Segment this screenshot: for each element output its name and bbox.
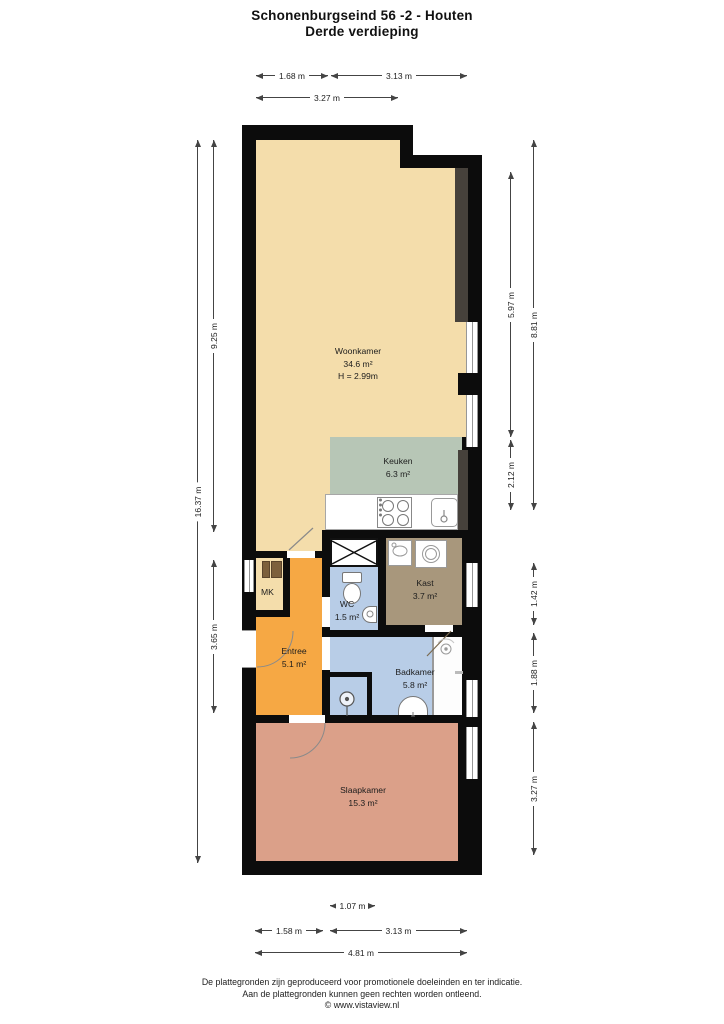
dim-left-1: 16.37 m xyxy=(197,140,198,863)
room-area: 1.5 m² xyxy=(335,611,359,624)
wall-shower-top xyxy=(330,672,372,677)
dim-label: 2.12 m xyxy=(506,458,516,492)
copyright: © www.vistaview.nl xyxy=(0,1000,724,1012)
room-height: H = 2.99m xyxy=(335,370,381,383)
floor-woonkamer-lower xyxy=(256,437,330,551)
toilet-tank xyxy=(342,572,362,583)
room-name: Kast xyxy=(413,577,437,590)
disclaimer: De plattegronden zijn geproduceerd voor … xyxy=(0,977,724,1012)
dim-label: 3.65 m xyxy=(209,620,219,654)
shower-area xyxy=(432,637,462,717)
disclaimer-line-1: De plattegronden zijn geproduceerd voor … xyxy=(0,977,724,989)
wall-window-pier xyxy=(458,373,482,395)
dim-bottom-2: 1.58 m xyxy=(255,930,323,931)
room-name: Badkamer xyxy=(395,666,434,679)
dim-label: 1.07 m xyxy=(336,901,370,911)
title-address: Schonenburgseind 56 -2 - Houten xyxy=(0,8,724,24)
dim-label: 3.27 m xyxy=(529,772,539,806)
kast-sink-unit xyxy=(388,540,412,566)
window-badkamer xyxy=(466,680,478,717)
dim-left-3: 3.65 m xyxy=(213,560,214,713)
dim-bottom-1: 1.07 m xyxy=(330,905,375,906)
wall-wc-badkamer xyxy=(322,630,385,637)
dim-label: 8.81 m xyxy=(529,308,539,342)
room-label-badkamer: Badkamer 5.8 m² xyxy=(395,666,434,691)
dim-label: 5.97 m xyxy=(506,288,516,322)
stove xyxy=(377,497,412,528)
window-recess-keuken xyxy=(458,450,468,530)
door-opening-wc xyxy=(322,597,330,627)
shower-door-handle xyxy=(455,671,463,674)
disclaimer-line-2: Aan de plattegronden kunnen geen rechten… xyxy=(0,989,724,1001)
room-name: Woonkamer xyxy=(335,345,381,358)
dim-label: 1.58 m xyxy=(272,926,306,936)
dim-right-4: 1.42 m xyxy=(533,563,534,625)
room-label-mk: MK xyxy=(261,587,274,597)
room-name: Keuken xyxy=(383,455,412,468)
room-name: Slaapkamer xyxy=(340,784,386,797)
dim-right-1: 5.97 m xyxy=(510,172,511,437)
floor-woonkamer-notch xyxy=(256,140,400,168)
dim-top-2: 3.13 m xyxy=(331,75,467,76)
room-label-kast: Kast 3.7 m² xyxy=(413,577,437,602)
dim-label: 3.13 m xyxy=(382,926,416,936)
room-label-wc: WC 1.5 m² xyxy=(335,598,359,623)
floor-woonkamer xyxy=(256,168,455,437)
dim-label: 3.27 m xyxy=(310,93,344,103)
dim-label: 3.13 m xyxy=(382,71,416,81)
dim-label: 1.68 m xyxy=(275,71,309,81)
dim-label: 1.88 m xyxy=(529,656,539,690)
room-label-slaapkamer: Slaapkamer 15.3 m² xyxy=(340,784,386,809)
room-area: 15.3 m² xyxy=(340,797,386,810)
wall-shaft-kast xyxy=(378,538,386,567)
door-opening-badkamer xyxy=(322,637,330,670)
room-label-entree: Entree 5.1 m² xyxy=(281,645,306,670)
room-area: 6.3 m² xyxy=(383,468,412,481)
room-name: Entree xyxy=(281,645,306,658)
room-area: 3.7 m² xyxy=(413,590,437,603)
dim-left-2: 9.25 m xyxy=(213,140,214,532)
dim-bottom-3: 3.13 m xyxy=(330,930,467,931)
dim-label: 9.25 m xyxy=(209,319,219,353)
front-door-opening xyxy=(242,630,256,668)
meter-box-2 xyxy=(271,561,282,578)
kitchen-sink xyxy=(431,498,458,527)
room-area: 5.1 m² xyxy=(281,658,306,671)
dim-right-2: 2.12 m xyxy=(510,440,511,510)
room-label-woonkamer: Woonkamer 34.6 m² H = 2.99m xyxy=(335,345,381,383)
wall-shower-right xyxy=(367,677,372,717)
page-title: Schonenburgseind 56 -2 - Houten Derde ve… xyxy=(0,8,724,40)
door-opening-slaapkamer xyxy=(289,715,325,723)
door-opening-kast xyxy=(425,625,453,632)
wall-slaapkamer-top xyxy=(242,715,482,723)
door-opening-woonkamer xyxy=(287,551,315,558)
window-woonkamer-1 xyxy=(466,322,478,373)
washing-machine xyxy=(415,540,447,568)
window-recess-upper xyxy=(455,168,468,322)
floorplan-page: Schonenburgseind 56 -2 - Houten Derde ve… xyxy=(0,0,724,1024)
dim-top-3: 3.27 m xyxy=(256,97,398,98)
wall-mk-right xyxy=(283,551,290,617)
dim-right-3: 8.81 m xyxy=(533,140,534,510)
dim-right-5: 1.88 m xyxy=(533,633,534,713)
window-woonkamer-2 xyxy=(466,395,478,447)
dim-right-6: 3.27 m xyxy=(533,722,534,855)
wc-basin xyxy=(362,606,377,623)
dim-label: 4.81 m xyxy=(344,948,378,958)
room-name: WC xyxy=(335,598,359,611)
title-floor: Derde verdieping xyxy=(0,24,724,40)
shaft xyxy=(330,538,378,567)
dim-label: 16.37 m xyxy=(193,482,203,521)
room-area: 5.8 m² xyxy=(395,679,434,692)
window-mk-left xyxy=(244,560,254,592)
wall-mk-bottom xyxy=(256,610,290,617)
window-slaapkamer xyxy=(466,727,478,779)
dim-label: 1.42 m xyxy=(529,577,539,611)
window-kast xyxy=(466,563,478,607)
room-area: 34.6 m² xyxy=(335,358,381,371)
meter-box-1 xyxy=(262,561,270,578)
room-label-keuken: Keuken 6.3 m² xyxy=(383,455,412,480)
dim-top-1: 1.68 m xyxy=(256,75,328,76)
wall-below-counter xyxy=(322,530,462,538)
dim-bottom-4: 4.81 m xyxy=(255,952,467,953)
